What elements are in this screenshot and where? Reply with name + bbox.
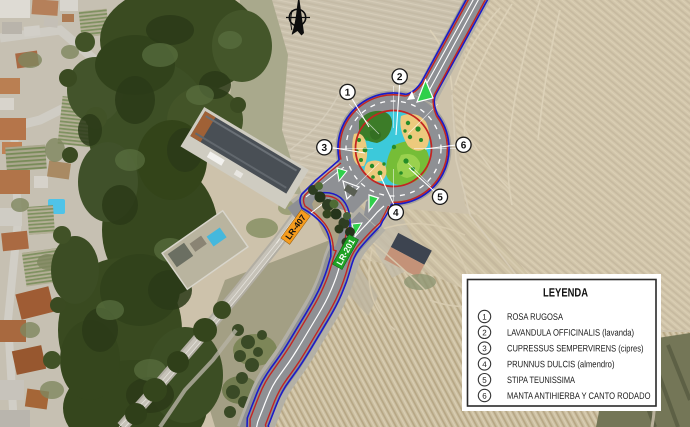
svg-text:ROSA RUGOSA: ROSA RUGOSA (507, 312, 564, 322)
svg-text:LEYENDA: LEYENDA (543, 286, 588, 300)
svg-text:5: 5 (437, 192, 443, 203)
svg-text:CUPRESSUS SEMPERVIRENS (cipres: CUPRESSUS SEMPERVIRENS (cipres) (507, 343, 644, 353)
svg-text:2: 2 (397, 72, 403, 83)
svg-text:3: 3 (482, 344, 487, 353)
svg-text:2: 2 (482, 328, 487, 337)
svg-text:STIPA TEUNISSIMA: STIPA TEUNISSIMA (507, 375, 576, 385)
svg-text:6: 6 (461, 140, 467, 151)
svg-text:4: 4 (393, 208, 399, 219)
svg-text:PRUNNUS DULCIS (almendro): PRUNNUS DULCIS (almendro) (507, 359, 615, 369)
svg-text:6: 6 (482, 392, 487, 401)
svg-text:1: 1 (345, 88, 351, 99)
svg-text:1: 1 (482, 313, 487, 322)
svg-text:5: 5 (482, 376, 487, 385)
svg-text:3: 3 (322, 143, 328, 154)
svg-text:MANTA ANTIHIERBA Y CANTO RODAD: MANTA ANTIHIERBA Y CANTO RODADO (507, 391, 651, 401)
svg-text:LAVANDULA OFFICINALIS (lavanda: LAVANDULA OFFICINALIS (lavanda) (507, 328, 634, 338)
svg-text:4: 4 (482, 360, 487, 369)
